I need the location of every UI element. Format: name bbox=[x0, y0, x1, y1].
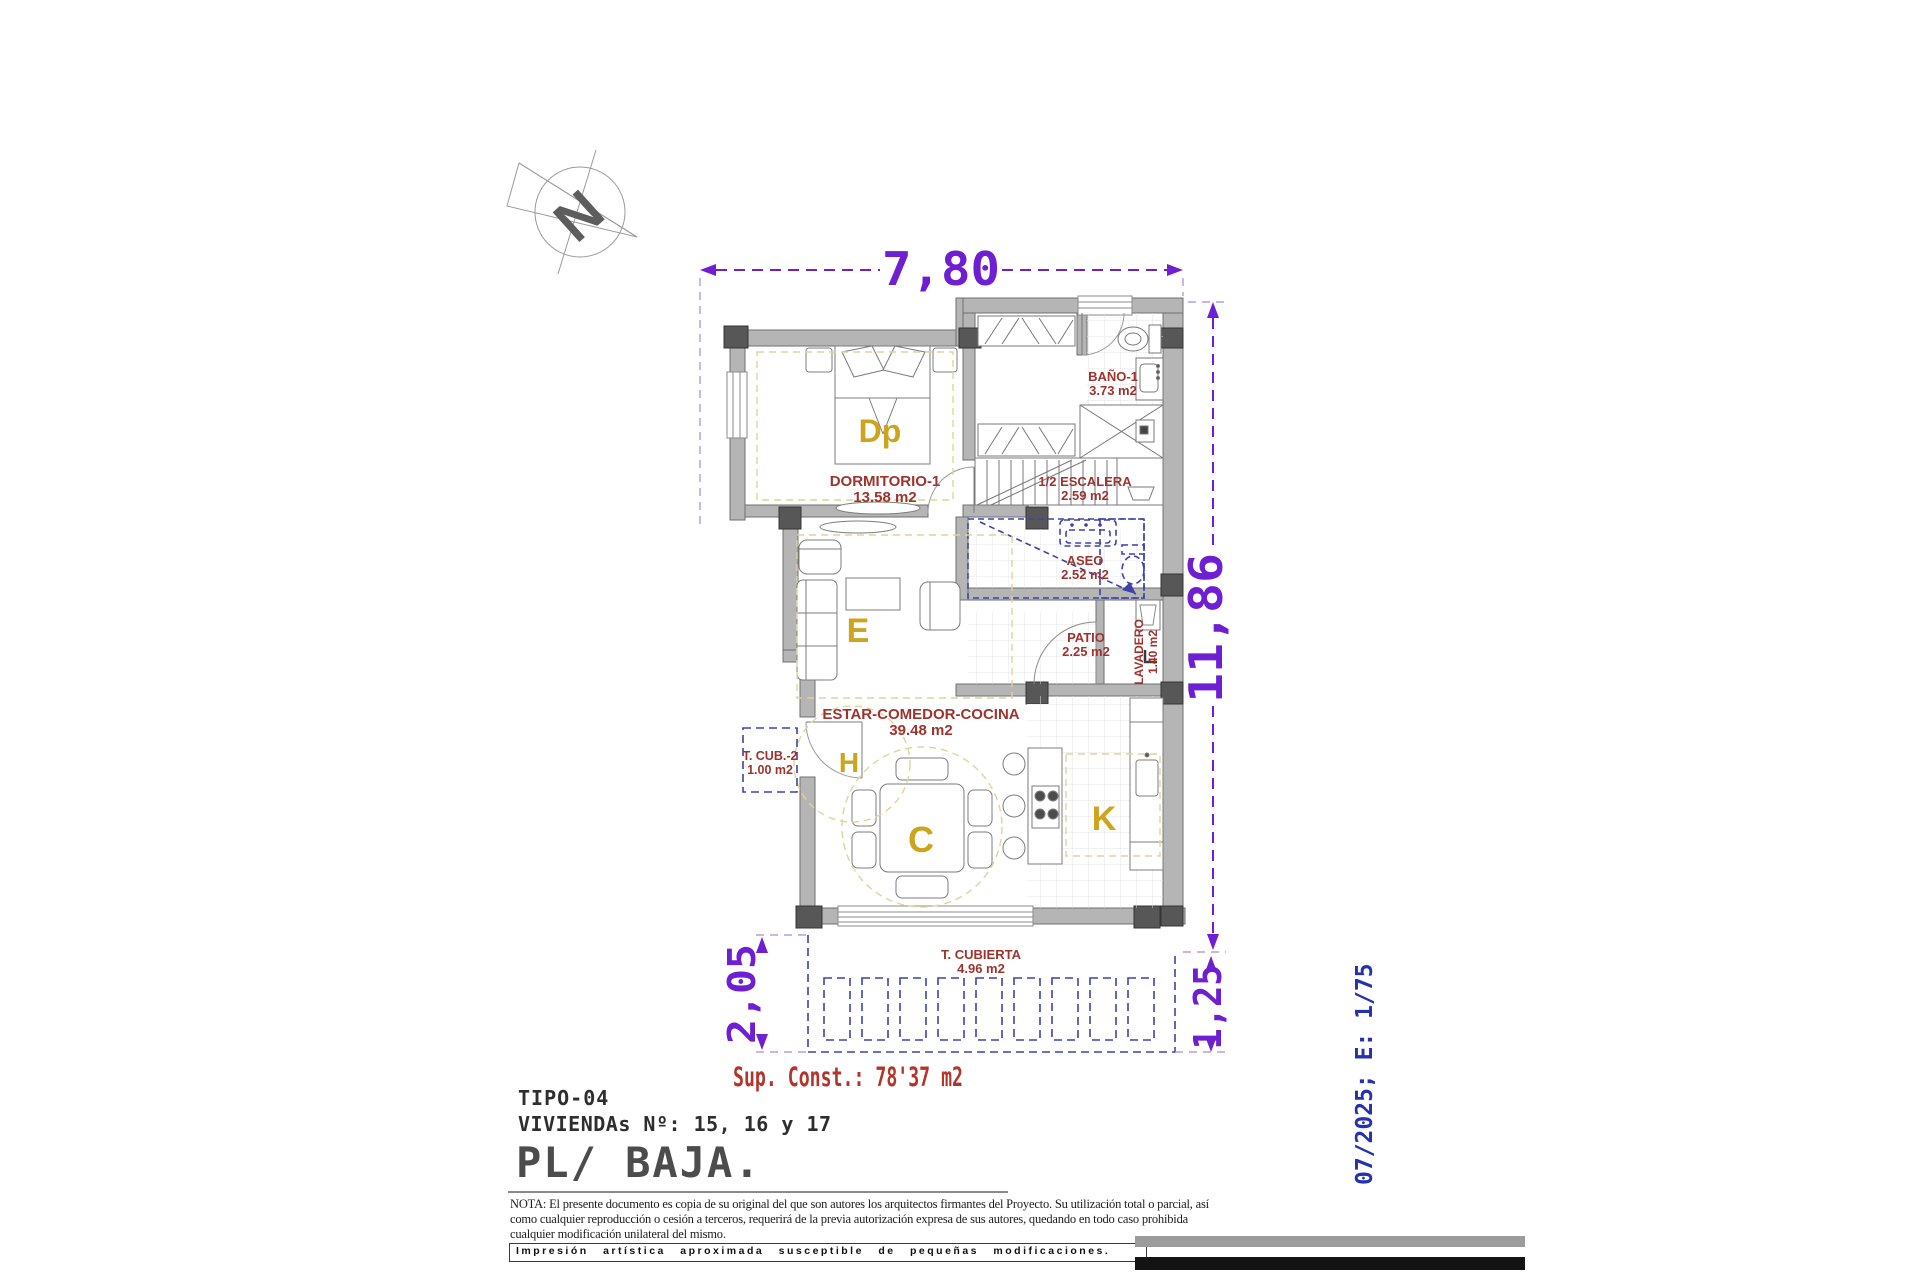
date-scale-note: 07/2025; E: 1/75 bbox=[1352, 969, 1378, 1185]
letter-k: K bbox=[1092, 800, 1117, 838]
dim-top-width: 7,80 bbox=[882, 242, 1000, 296]
title-divider bbox=[508, 1191, 1008, 1193]
label-patio-area: 2.25 m2 bbox=[1062, 644, 1110, 659]
dim-terrace-left: 2,05 bbox=[720, 944, 764, 1044]
letter-h: H bbox=[839, 747, 859, 778]
label-estar-area: 39.48 m2 bbox=[889, 722, 952, 739]
label-tcubierta-area: 4.96 m2 bbox=[957, 961, 1005, 976]
north-letter: N bbox=[542, 178, 617, 254]
title-viviendas: VIVIENDAs Nº: 15, 16 y 17 bbox=[518, 1112, 832, 1136]
label-tcubierta: T. CUBIERTA bbox=[941, 947, 1022, 962]
built-area-text: Sup. Const.: 78'37 m2 bbox=[733, 1062, 963, 1093]
chair bbox=[896, 876, 948, 898]
label-tcub2-area: 1.00 m2 bbox=[747, 763, 793, 777]
floorplan-drawing: N bbox=[0, 0, 1920, 1280]
label-aseo-area: 2.52 m2 bbox=[1061, 567, 1109, 582]
north-compass: N bbox=[507, 150, 637, 274]
floorplan-sheet: N bbox=[0, 0, 1920, 1280]
console-table bbox=[820, 521, 896, 533]
label-lavadero: LAVADERO bbox=[1132, 619, 1146, 685]
letter-e: E bbox=[847, 612, 870, 650]
dim-right-height: 11,86 bbox=[1179, 553, 1233, 703]
letter-c: C bbox=[908, 819, 934, 860]
coffee-table bbox=[846, 578, 900, 610]
stool bbox=[1003, 837, 1025, 859]
label-dormitorio: DORMITORIO-1 bbox=[830, 473, 941, 490]
chair bbox=[968, 832, 992, 868]
disclaimer-box: Impresión artística aproximada susceptib… bbox=[509, 1243, 1147, 1262]
label-bano: BAÑO-1 bbox=[1088, 369, 1138, 384]
label-estar: ESTAR-COMEDOR-COCINA bbox=[822, 706, 1019, 723]
chair bbox=[852, 832, 876, 868]
label-dormitorio-area: 13.58 m2 bbox=[853, 489, 916, 506]
title-floor: PL/ BAJA. bbox=[516, 1138, 762, 1187]
legal-note-line: como cualquier reproducción o cesión a t… bbox=[510, 1212, 1270, 1227]
chair bbox=[896, 758, 948, 780]
legal-note: NOTA: El presente documento es copia de … bbox=[510, 1197, 1270, 1241]
label-bano-area: 3.73 m2 bbox=[1089, 383, 1137, 398]
toilet-tank bbox=[1149, 325, 1161, 353]
kitchen-sink bbox=[1136, 760, 1158, 796]
letter-dp: Dp bbox=[859, 413, 902, 449]
label-tcub2: T. CUB.-2 bbox=[743, 749, 798, 763]
stool bbox=[1003, 795, 1025, 817]
footer-gray-bar bbox=[1135, 1236, 1525, 1247]
armchair bbox=[799, 540, 841, 574]
dim-terrace-right: 1,25 bbox=[1186, 965, 1230, 1050]
sofa bbox=[797, 580, 837, 680]
title-type: TIPO-04 bbox=[518, 1086, 609, 1110]
chair bbox=[968, 790, 992, 826]
label-patio: PATIO bbox=[1067, 630, 1105, 645]
label-escalera: 1/2 ESCALERA bbox=[1038, 474, 1132, 489]
label-aseo: ASEO bbox=[1067, 553, 1104, 568]
stool bbox=[1003, 753, 1025, 775]
label-escalera-area: 2.59 m2 bbox=[1061, 488, 1109, 503]
footer-black-bar bbox=[1135, 1257, 1525, 1270]
label-lavadero-area: 1.40 m2 bbox=[1146, 630, 1160, 674]
legal-note-line: NOTA: El presente documento es copia de … bbox=[510, 1197, 1270, 1212]
armchair bbox=[920, 582, 960, 630]
